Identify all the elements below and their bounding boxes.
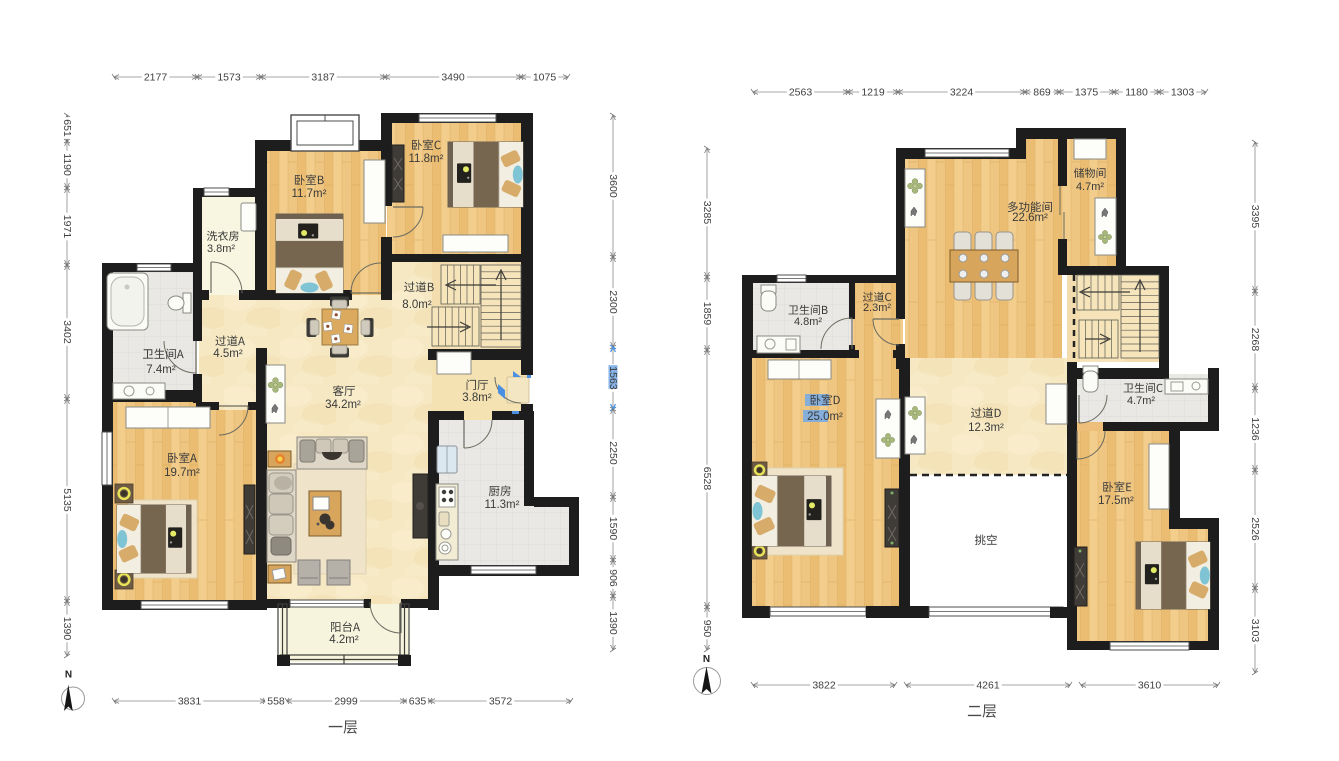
svg-text:1390: 1390 bbox=[607, 611, 619, 635]
svg-text:1375: 1375 bbox=[1075, 87, 1099, 99]
svg-text:25.0m²: 25.0m² bbox=[807, 411, 843, 423]
svg-text:2.3m²: 2.3m² bbox=[863, 302, 891, 314]
svg-text:3224: 3224 bbox=[950, 87, 974, 99]
svg-text:1190: 1190 bbox=[61, 153, 73, 176]
svg-text:2177: 2177 bbox=[144, 72, 168, 84]
svg-text:7.4m²: 7.4m² bbox=[146, 364, 176, 376]
svg-text:1180: 1180 bbox=[1125, 87, 1148, 99]
svg-text:2268: 2268 bbox=[1249, 328, 1261, 352]
svg-text:2999: 2999 bbox=[334, 696, 358, 708]
svg-text:1075: 1075 bbox=[533, 72, 557, 84]
svg-text:5135: 5135 bbox=[61, 488, 73, 512]
svg-text:558: 558 bbox=[267, 696, 285, 708]
svg-text:19.7m²: 19.7m² bbox=[164, 467, 200, 479]
svg-text:1303: 1303 bbox=[1171, 87, 1195, 99]
svg-text:3.8m²: 3.8m² bbox=[207, 243, 235, 255]
svg-text:869: 869 bbox=[1033, 87, 1051, 99]
svg-text:1563: 1563 bbox=[607, 366, 619, 390]
svg-text:4.2m²: 4.2m² bbox=[329, 634, 359, 646]
svg-text:22.6m²: 22.6m² bbox=[1012, 212, 1048, 224]
svg-text:3490: 3490 bbox=[441, 72, 465, 84]
svg-text:3103: 3103 bbox=[1249, 619, 1261, 643]
svg-text:1590: 1590 bbox=[607, 517, 619, 541]
svg-text:3822: 3822 bbox=[812, 680, 836, 692]
svg-text:11.3m²: 11.3m² bbox=[485, 499, 520, 511]
svg-text:651: 651 bbox=[61, 119, 73, 137]
svg-text:34.2m²: 34.2m² bbox=[325, 399, 361, 411]
svg-text:4.7m²: 4.7m² bbox=[1127, 395, 1155, 407]
svg-text:4.5m²: 4.5m² bbox=[213, 348, 243, 360]
svg-text:2526: 2526 bbox=[1249, 517, 1261, 541]
svg-text:950: 950 bbox=[701, 620, 713, 638]
svg-text:635: 635 bbox=[409, 696, 427, 708]
svg-text:8.0m²: 8.0m² bbox=[402, 299, 432, 311]
svg-text:2250: 2250 bbox=[607, 441, 619, 465]
svg-text:2300: 2300 bbox=[607, 290, 619, 314]
svg-text:3831: 3831 bbox=[178, 696, 202, 708]
svg-text:3600: 3600 bbox=[607, 174, 619, 198]
svg-text:4261: 4261 bbox=[976, 680, 1000, 692]
svg-text:3402: 3402 bbox=[61, 320, 73, 344]
svg-text:1390: 1390 bbox=[61, 617, 73, 641]
svg-text:6528: 6528 bbox=[701, 467, 713, 491]
svg-text:11.8m²: 11.8m² bbox=[409, 153, 444, 165]
svg-text:1859: 1859 bbox=[701, 302, 713, 326]
svg-text:17.5m²: 17.5m² bbox=[1098, 495, 1134, 507]
svg-text:1236: 1236 bbox=[1249, 417, 1261, 441]
svg-text:2563: 2563 bbox=[789, 87, 813, 99]
svg-text:3285: 3285 bbox=[701, 201, 713, 225]
svg-text:1219: 1219 bbox=[861, 87, 885, 99]
svg-text:3395: 3395 bbox=[1249, 205, 1261, 229]
svg-text:3610: 3610 bbox=[1138, 680, 1162, 692]
svg-text:N: N bbox=[703, 654, 710, 665]
svg-text:4.8m²: 4.8m² bbox=[794, 316, 822, 328]
svg-text:3187: 3187 bbox=[311, 72, 335, 84]
svg-text:906: 906 bbox=[607, 569, 619, 587]
svg-text:3.8m²: 3.8m² bbox=[462, 392, 492, 404]
svg-text:4.7m²: 4.7m² bbox=[1076, 181, 1104, 193]
svg-text:N: N bbox=[65, 670, 72, 681]
svg-text:3572: 3572 bbox=[489, 696, 513, 708]
svg-text:1573: 1573 bbox=[217, 72, 241, 84]
svg-text:12.3m²: 12.3m² bbox=[968, 422, 1004, 434]
svg-text:11.7m²: 11.7m² bbox=[292, 188, 327, 200]
svg-text:1971: 1971 bbox=[61, 215, 73, 239]
